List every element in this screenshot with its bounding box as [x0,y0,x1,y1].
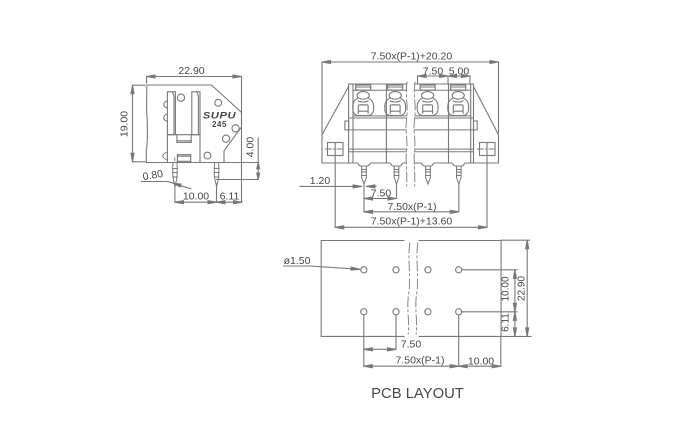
svg-text:7.50x(P-1)+20.20: 7.50x(P-1)+20.20 [371,51,453,63]
svg-text:10.00: 10.00 [183,191,209,203]
svg-text:7.50: 7.50 [371,188,392,200]
svg-text:1.20: 1.20 [310,175,331,187]
svg-text:5.00: 5.00 [449,66,470,78]
svg-text:245: 245 [212,120,227,129]
svg-text:22.90: 22.90 [517,276,528,301]
svg-text:7.50x(P-1): 7.50x(P-1) [395,355,444,367]
svg-text:4.00: 4.00 [245,137,257,158]
svg-text:7.50: 7.50 [401,339,422,351]
svg-text:10.00: 10.00 [468,356,494,368]
svg-text:22.90: 22.90 [178,65,204,77]
svg-text:7.50x(P-1): 7.50x(P-1) [387,201,436,213]
svg-text:7.50x(P-1)+13.60: 7.50x(P-1)+13.60 [371,216,453,228]
svg-text:19.00: 19.00 [119,111,131,137]
svg-text:PCB LAYOUT: PCB LAYOUT [371,386,464,402]
svg-text:6.11: 6.11 [220,191,240,203]
svg-text:0.80: 0.80 [142,168,164,183]
svg-text:ø1.50: ø1.50 [284,255,311,267]
svg-text:10.00: 10.00 [501,276,512,301]
svg-text:6.11: 6.11 [501,313,512,332]
svg-text:7.50: 7.50 [423,66,444,78]
